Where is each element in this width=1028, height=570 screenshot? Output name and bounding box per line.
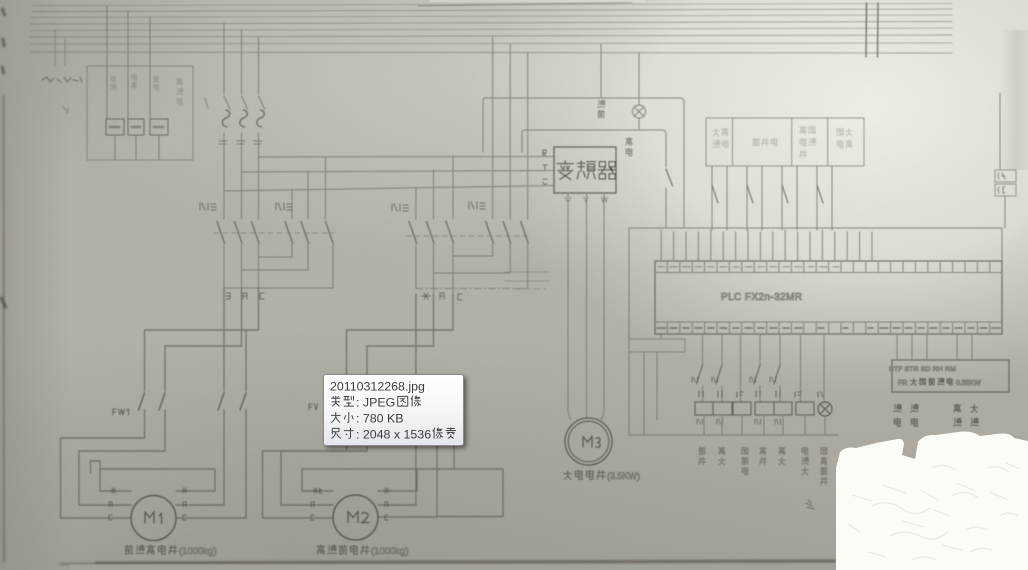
svg-text:STF STR SD RH RM: STF STR SD RH RM [889,366,956,373]
svg-text:20110312268.jpg: 20110312268.jpg [330,380,425,394]
svg-text:: JPEG: : JPEG [356,396,395,410]
svg-text:FR: FR [898,380,907,387]
svg-text:: 780 KB: : 780 KB [356,412,404,426]
svg-text:(3.5KW): (3.5KW) [607,471,640,481]
svg-text:(1000kg): (1000kg) [179,546,217,557]
svg-text:(1000kg): (1000kg) [371,546,409,557]
svg-text:: 2048 x 1536: : 2048 x 1536 [356,428,431,442]
svg-text:0.55KW: 0.55KW [956,380,981,387]
svg-text:PLC FX2n-32MR: PLC FX2n-32MR [721,292,802,303]
